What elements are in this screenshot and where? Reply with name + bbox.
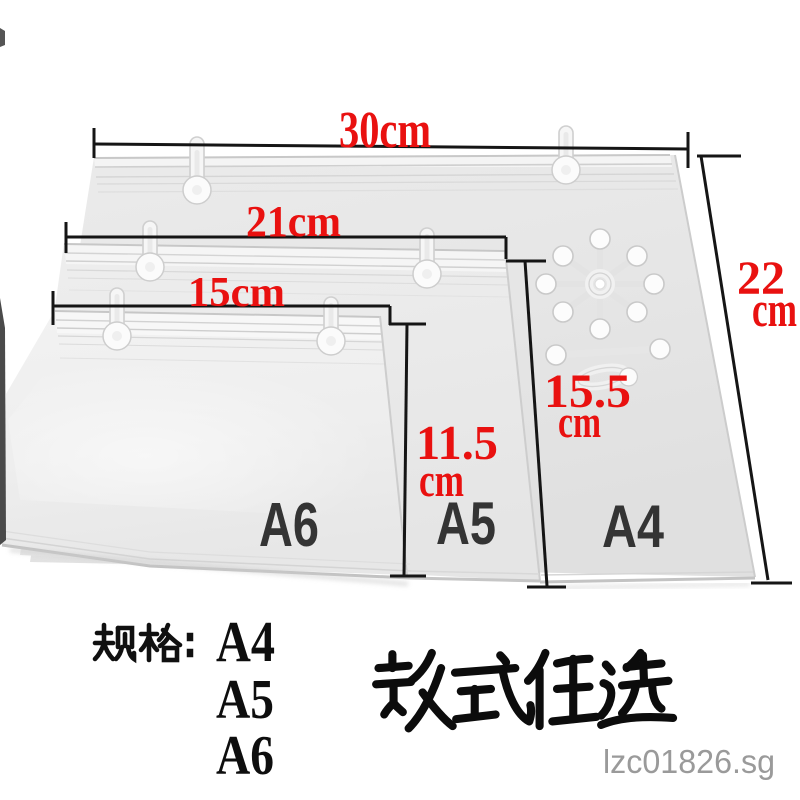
svg-text:cm: cm (752, 281, 797, 337)
svg-text:A6: A6 (216, 725, 274, 787)
svg-text:30cm: 30cm (339, 102, 431, 159)
svg-text:cm: cm (558, 396, 601, 447)
svg-text:A4: A4 (602, 493, 665, 560)
svg-text:A6: A6 (259, 491, 319, 560)
svg-text:A5: A5 (216, 669, 274, 731)
svg-text:15cm: 15cm (188, 270, 285, 316)
svg-text:A4: A4 (216, 609, 275, 674)
svg-text:lzc01826.sg: lzc01826.sg (603, 743, 775, 780)
svg-text:A5: A5 (436, 490, 496, 557)
svg-text:21cm: 21cm (246, 197, 341, 246)
